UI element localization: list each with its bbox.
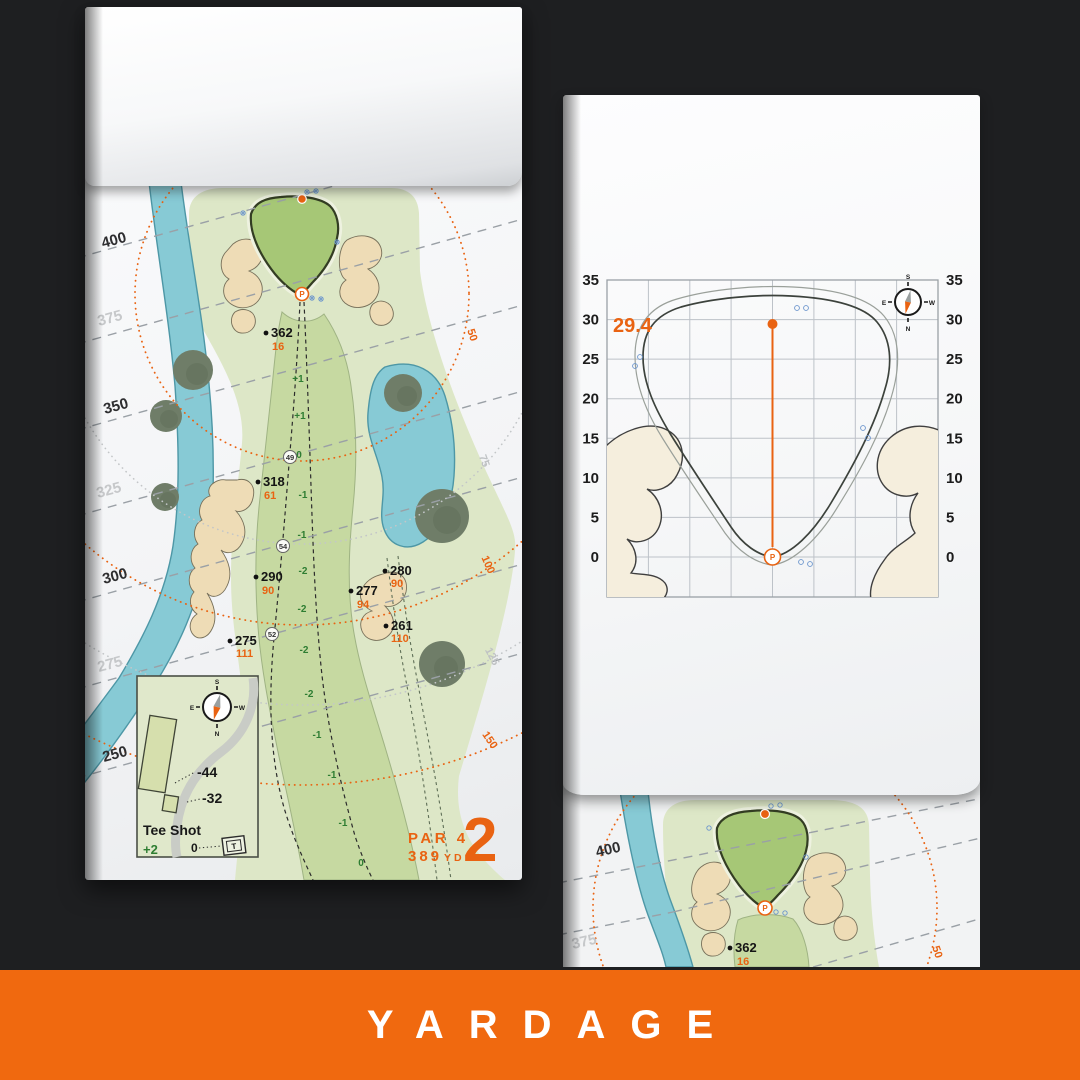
- compass-w: W: [239, 705, 246, 712]
- par-label: PAR 4: [408, 830, 469, 847]
- marker-yardage: 290: [261, 569, 283, 584]
- slope-number: -1: [339, 818, 348, 829]
- pin-marker: P: [758, 901, 772, 915]
- chart-pin-marker: P: [765, 549, 781, 565]
- yardage-book-graphic: 400 375 350 325 300 275 250 50 75 100 12…: [0, 0, 1080, 1080]
- marker-yardage: 275: [235, 633, 257, 648]
- marker-carry: 61: [264, 490, 276, 502]
- y-tick: 0: [591, 549, 599, 566]
- marker-yardage: 277: [356, 583, 378, 598]
- slope-number: -2: [305, 689, 314, 700]
- marker-yardage: 362: [735, 940, 757, 955]
- marker-carry: 16: [737, 956, 749, 967]
- green-chart-sheet[interactable]: 29.4 P 35 30 25 20: [563, 95, 980, 795]
- yardage-number: 389: [408, 848, 442, 865]
- chart-y-ticks-left: 35 30 25 20 15 10 5 0: [582, 272, 599, 566]
- arc-label: 50: [929, 944, 944, 959]
- compass-s: S: [906, 274, 911, 281]
- marker-carry: 94: [357, 599, 370, 611]
- waypoint-number: 54: [279, 542, 288, 551]
- y-tick: 0: [946, 549, 954, 566]
- waypoint-number: 49: [286, 453, 294, 462]
- y-tick: 15: [582, 430, 599, 447]
- hole-number: 2: [463, 806, 497, 875]
- hole-map-illustration: 400 375 350 325 300 275 250 50 75 100 12…: [85, 186, 522, 880]
- yardage-banner: YARDAGE: [0, 970, 1080, 1080]
- page-curl-top[interactable]: [85, 7, 522, 186]
- inset-title: Tee Shot: [143, 822, 201, 838]
- slope-number: -2: [298, 604, 307, 615]
- slope-number: 0: [296, 450, 302, 461]
- compass-n: N: [906, 326, 911, 333]
- margin-label: 400: [100, 229, 129, 252]
- pin-marker: P: [296, 288, 309, 301]
- y-tick: 5: [591, 509, 599, 526]
- y-tick: 15: [946, 430, 963, 447]
- slope-number: -1: [298, 530, 307, 541]
- banner-title: YARDAGE: [342, 1003, 738, 1048]
- slope-number: +1: [292, 374, 304, 385]
- next-page-map: 400 375 50 362 16 P: [563, 795, 980, 967]
- marker-yardage: 318: [263, 474, 285, 489]
- aim-point-dot: [761, 810, 770, 819]
- slope-number: -2: [300, 645, 309, 656]
- tee-marker-icon: T: [222, 836, 246, 856]
- waypoint-number: 52: [268, 630, 276, 639]
- slope-number: -1: [328, 770, 337, 781]
- green-outline-outer: [635, 287, 898, 566]
- y-tick: 25: [582, 351, 599, 368]
- pin-letter: P: [762, 904, 768, 913]
- pin-letter: P: [770, 553, 776, 562]
- y-tick: 35: [582, 272, 599, 289]
- tee-offset-a: -44: [197, 764, 217, 780]
- tee-shot-inset: -44 -32 Tee Shot +2 0 T: [136, 676, 258, 857]
- compass-e: E: [882, 300, 887, 307]
- chart-y-ticks-right: 35 30 25 20 15 10 5 0: [946, 272, 963, 566]
- compass-w: W: [929, 300, 936, 307]
- arc-label: 50: [464, 327, 479, 342]
- y-tick: 20: [582, 391, 599, 408]
- hole-map-page: 400 375 350 325 300 275 250 50 75 100 12…: [85, 7, 522, 880]
- marker-yardage: 280: [390, 563, 412, 578]
- slope-number: -1: [313, 730, 322, 741]
- tee-shot-score: +2: [143, 842, 158, 857]
- aim-point-dot: [298, 195, 307, 204]
- marker-carry: 16: [272, 341, 284, 353]
- arc-label: 150: [479, 729, 499, 751]
- marker-carry: 110: [391, 633, 409, 645]
- compass-n: N: [215, 731, 220, 738]
- marker-yardage: 261: [391, 618, 413, 633]
- forward-tee-box: [162, 795, 178, 813]
- y-tick: 30: [582, 312, 599, 329]
- slope-number: +1: [294, 411, 306, 422]
- distance-marker: 275 111: [228, 633, 257, 660]
- margin-label: 300: [101, 565, 130, 588]
- compass-e: E: [190, 705, 195, 712]
- pin-depth-value: 29.4: [613, 315, 653, 337]
- next-page-preview: 400 375 50 362 16 P: [563, 795, 980, 967]
- yardage-unit: YD: [444, 852, 465, 864]
- slope-number: -1: [299, 490, 308, 501]
- marker-carry: 90: [262, 585, 274, 597]
- y-tick: 10: [582, 470, 599, 487]
- tee-zero-label: 0: [191, 841, 198, 855]
- margin-label: 400: [594, 839, 622, 861]
- slope-number: -2: [299, 566, 308, 577]
- green-depth-chart: 29.4 P 35 30 25 20: [563, 95, 980, 795]
- compass-s: S: [215, 679, 220, 686]
- tee-offset-b: -32: [202, 790, 222, 806]
- green-chart-page: 29.4 P 35 30 25 20: [563, 95, 980, 967]
- right-page-spine-shadow: [563, 95, 581, 967]
- y-tick: 20: [946, 391, 963, 408]
- y-tick: 25: [946, 351, 963, 368]
- marker-carry: 111: [236, 648, 253, 660]
- slope-number: 0: [358, 858, 364, 869]
- left-page-spine-shadow: [85, 7, 103, 880]
- y-tick: 10: [946, 470, 963, 487]
- marker-yardage: 362: [271, 325, 293, 340]
- y-tick: 5: [946, 509, 954, 526]
- y-tick: 35: [946, 272, 963, 289]
- y-tick: 30: [946, 312, 963, 329]
- marker-carry: 90: [391, 578, 403, 590]
- pin-letter: P: [299, 290, 305, 299]
- margin-label: 350: [102, 395, 131, 418]
